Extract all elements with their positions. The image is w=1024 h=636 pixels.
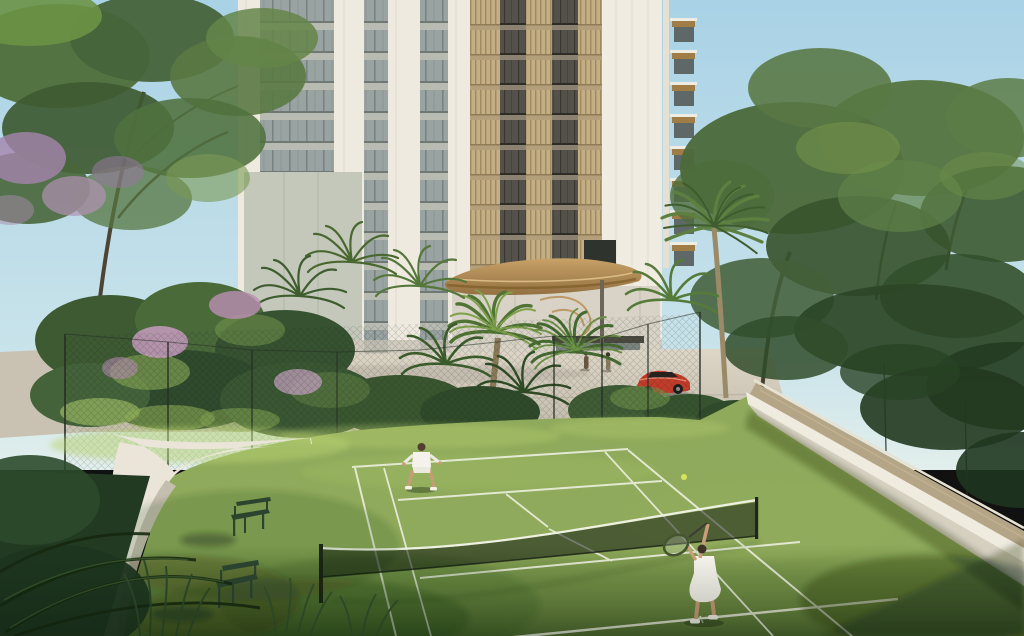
tennis-ball [681,474,687,480]
net-post-right [755,497,758,539]
scene-canvas [0,0,1024,636]
far-player-shirt [412,452,431,467]
bottom-vignette [0,556,1024,636]
rendering-stage [0,0,1024,636]
